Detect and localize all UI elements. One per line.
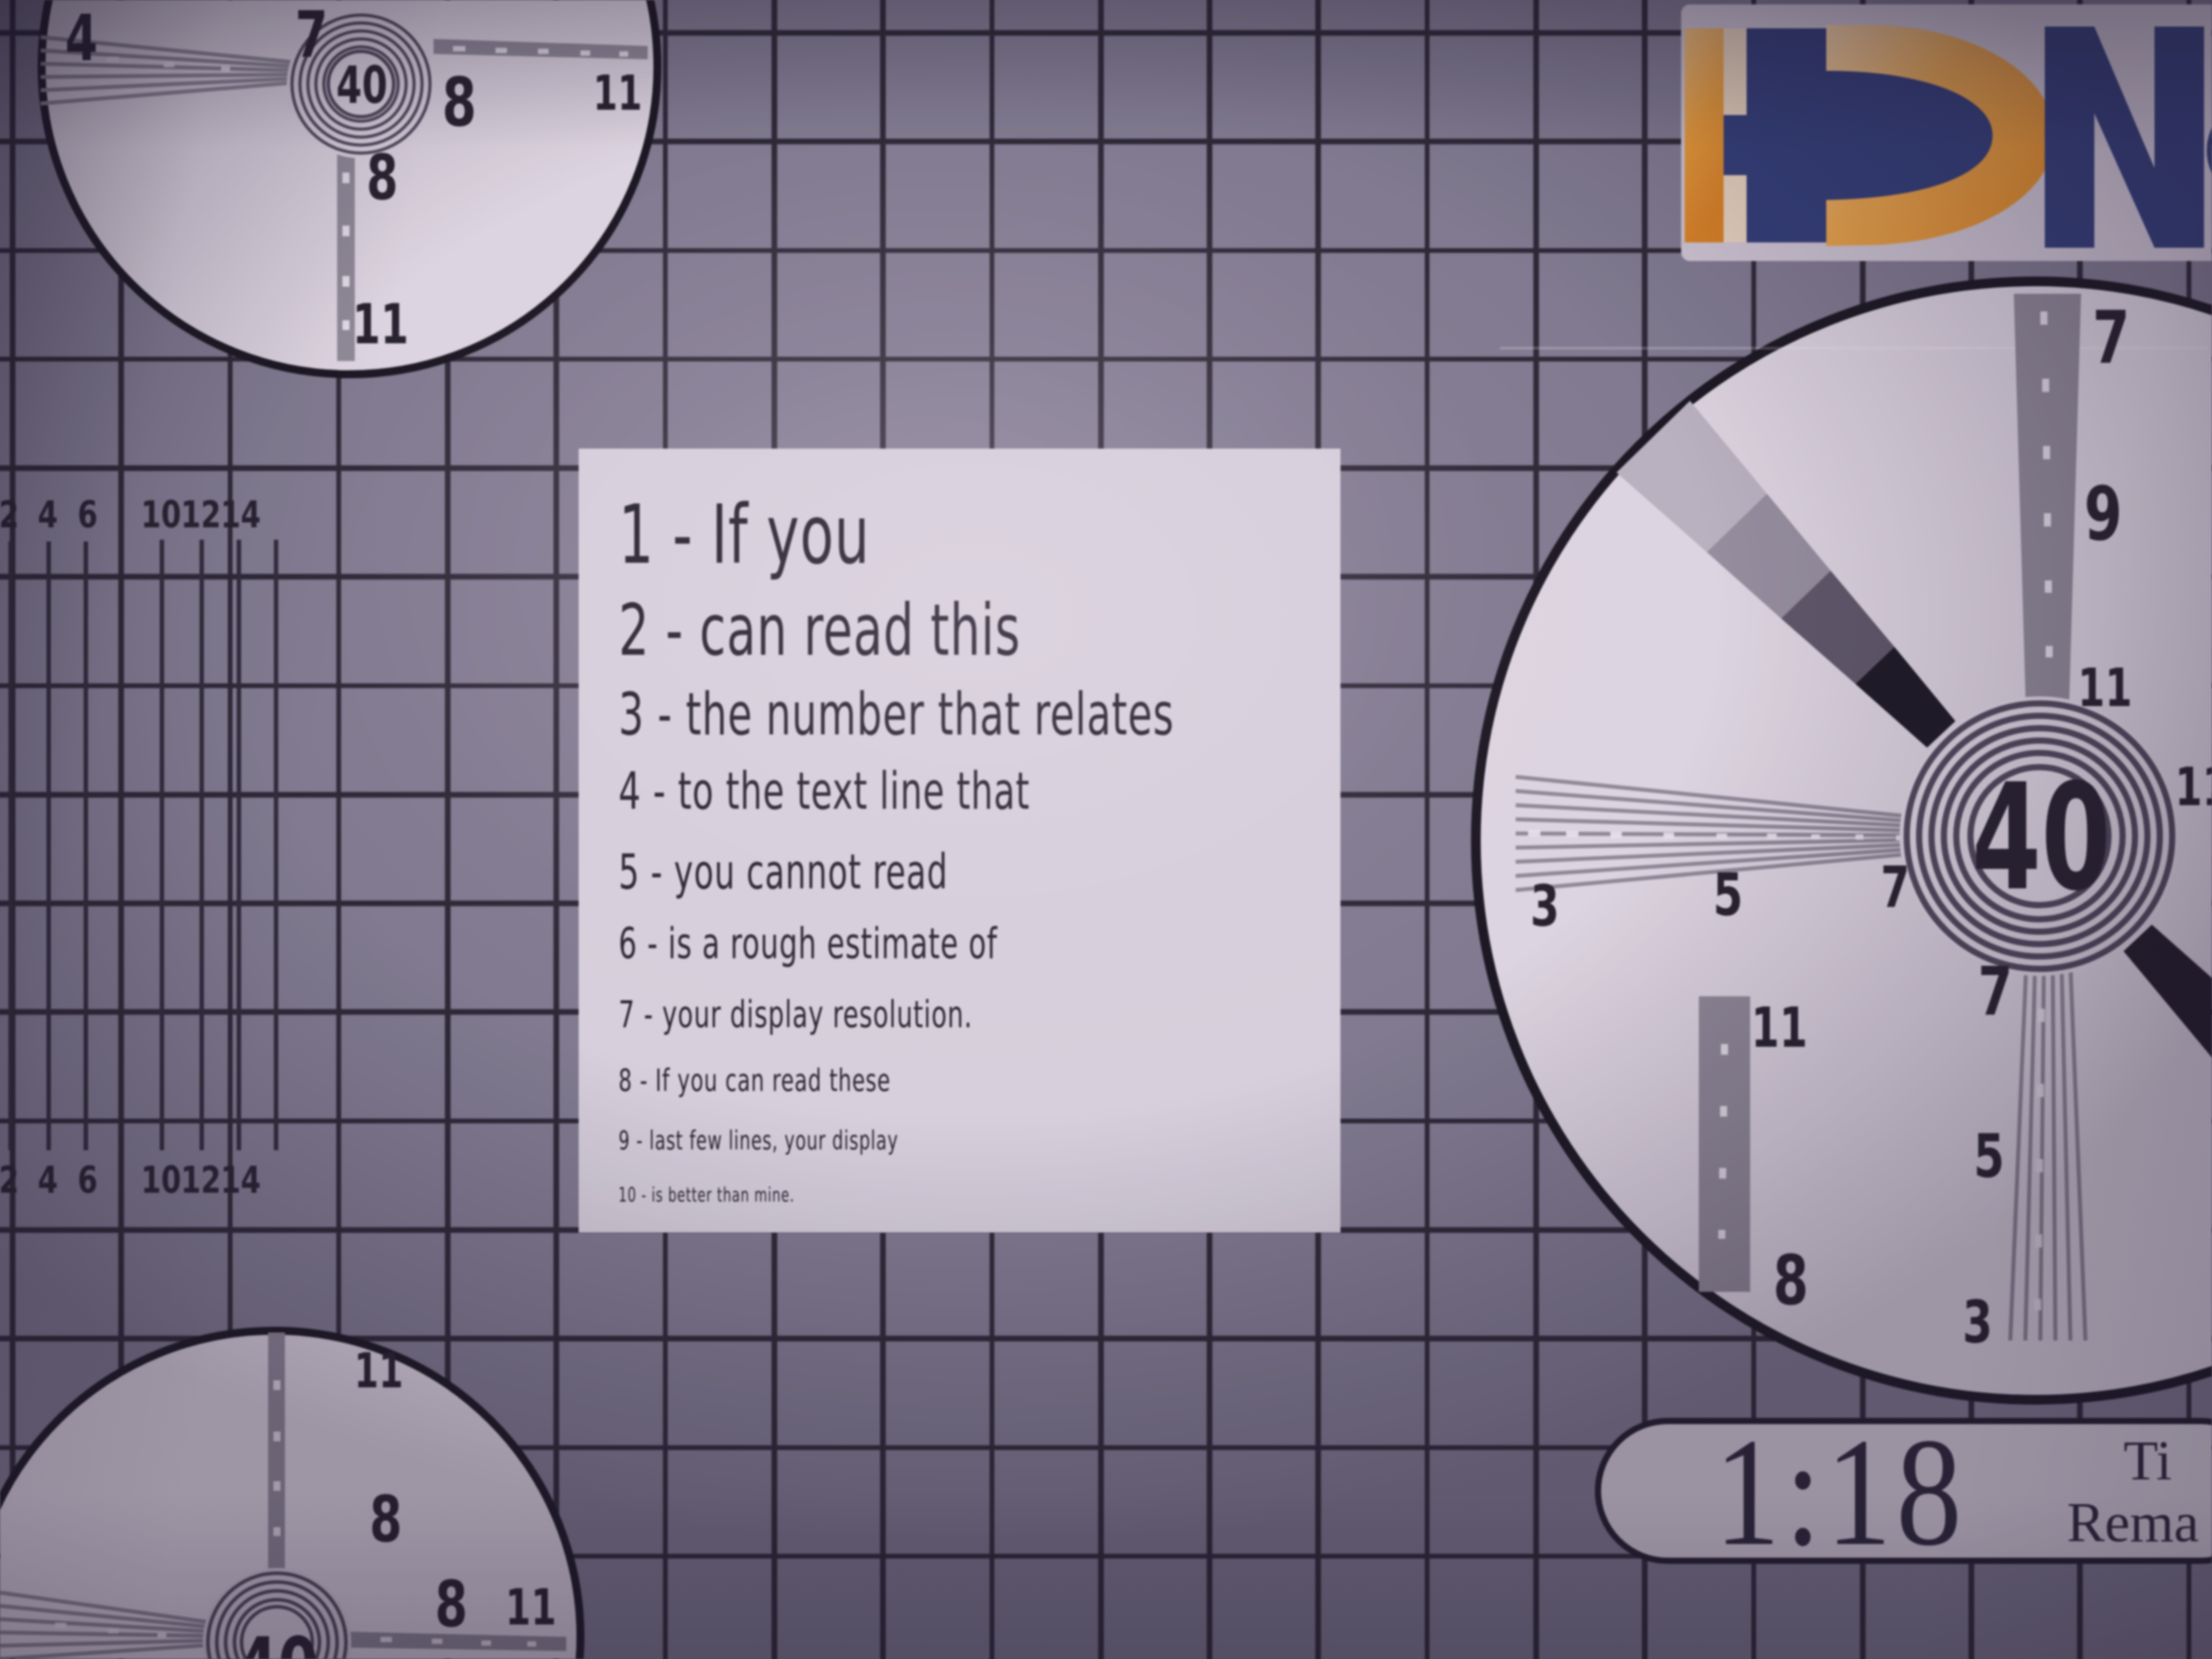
readability-text-panel: 1 - If you 2 - can read this 3 - the num… (579, 449, 1340, 1233)
text-line-8: 8 - If you can read these (618, 1064, 891, 1099)
logo-letter-h (1685, 28, 1724, 242)
logo-letter-h (1747, 28, 1826, 242)
resolution-number: 7 (295, 0, 327, 72)
resolution-number: 3 (1531, 874, 1560, 940)
horizontal-resolution-ruler (11, 540, 276, 1150)
tv-test-pattern-photo: 40 4 7 8 11 8 11 (0, 0, 2212, 1659)
time-remaining-label: Rema (2067, 1491, 2199, 1554)
text-line-6: 6 - is a rough estimate of (618, 919, 997, 969)
text-line-9: 9 - last few lines, your display (618, 1125, 898, 1156)
ruler-label: 10 (141, 1158, 181, 1202)
target-circle-top-left: 40 4 7 8 11 8 11 (41, 0, 657, 374)
text-line-4: 4 - to the text line that (618, 761, 1030, 821)
timer-panel: 1:18 Ti Rema (1598, 1407, 2212, 1578)
target-circle-right: 40 7 9 11 3 5 7 11 8 7 5 3 11 (1476, 281, 2212, 1400)
resolution-number: 11 (352, 292, 409, 357)
ruler-label: 6 (78, 1158, 98, 1202)
bullseye-40: 40 (1900, 696, 2179, 976)
text-line-1: 1 - If you (618, 488, 870, 582)
text-line-3: 3 - the number that relates (618, 680, 1174, 749)
photo-layer: 40 4 7 8 11 8 11 (0, 0, 2212, 1659)
resolution-number: 11 (2078, 657, 2132, 718)
ruler-label: 6 (78, 493, 98, 536)
resolution-band-up (268, 1333, 285, 1577)
text-line-10: 10 - is better than mine. (618, 1185, 795, 1207)
ruler-label: 12 (180, 493, 221, 536)
resolution-number: 8 (369, 1482, 402, 1556)
ruler-label: 12 (180, 1158, 221, 1202)
resolution-number: 7 (1881, 856, 1910, 921)
bullseye-number: 40 (237, 1620, 319, 1659)
resolution-number: 8 (434, 1567, 467, 1641)
resolution-number: 9 (2084, 472, 2122, 558)
resolution-number: 8 (1773, 1240, 1809, 1321)
ruler-label: 4 (38, 493, 58, 536)
resolution-number: 3 (1962, 1288, 1993, 1356)
ruler-label: 2 (0, 1158, 19, 1202)
logo-letter-h (1724, 115, 1747, 175)
ruler-labels-bottom: 2 4 6 10 12 14 (0, 1158, 261, 1202)
resolution-number: 11 (593, 66, 642, 122)
text-line-7: 7 - your display resolution. (618, 993, 972, 1036)
resolution-number: 8 (366, 142, 398, 214)
ruler-label: 14 (220, 1158, 261, 1202)
resolution-number: 7 (1978, 953, 2012, 1032)
ruler-labels-top: 2 4 6 10 12 14 (0, 493, 261, 536)
resolution-number: 4 (65, 1, 97, 75)
resolution-number: 8 (442, 64, 476, 142)
resolution-number: 5 (1713, 861, 1743, 929)
text-line-5: 5 - you cannot read (618, 844, 948, 900)
hdnet-logo (1681, 4, 2212, 261)
ruler-label: 2 (0, 493, 19, 536)
resolution-number: 11 (1751, 995, 1808, 1060)
time-remaining-label: Ti (2124, 1429, 2172, 1492)
resolution-number: 5 (1973, 1121, 2004, 1192)
ruler-label: 10 (141, 493, 181, 536)
text-line-2: 2 - can read this (618, 589, 1020, 672)
bullseye-number: 40 (336, 55, 388, 115)
ruler-label: 14 (220, 493, 261, 536)
ruler-label: 4 (38, 1158, 58, 1202)
time-remaining-value: 1:18 (1715, 1407, 1967, 1578)
gray-bar (1699, 996, 1750, 1292)
resolution-number: 11 (505, 1578, 557, 1637)
resolution-number: 11 (2175, 757, 2212, 818)
target-circle-bottom-left: 40 11 8 8 11 (0, 1331, 580, 1659)
resolution-number: 7 (2093, 296, 2130, 380)
resolution-number: 11 (354, 1344, 403, 1400)
bullseye-number: 40 (1971, 753, 2110, 924)
